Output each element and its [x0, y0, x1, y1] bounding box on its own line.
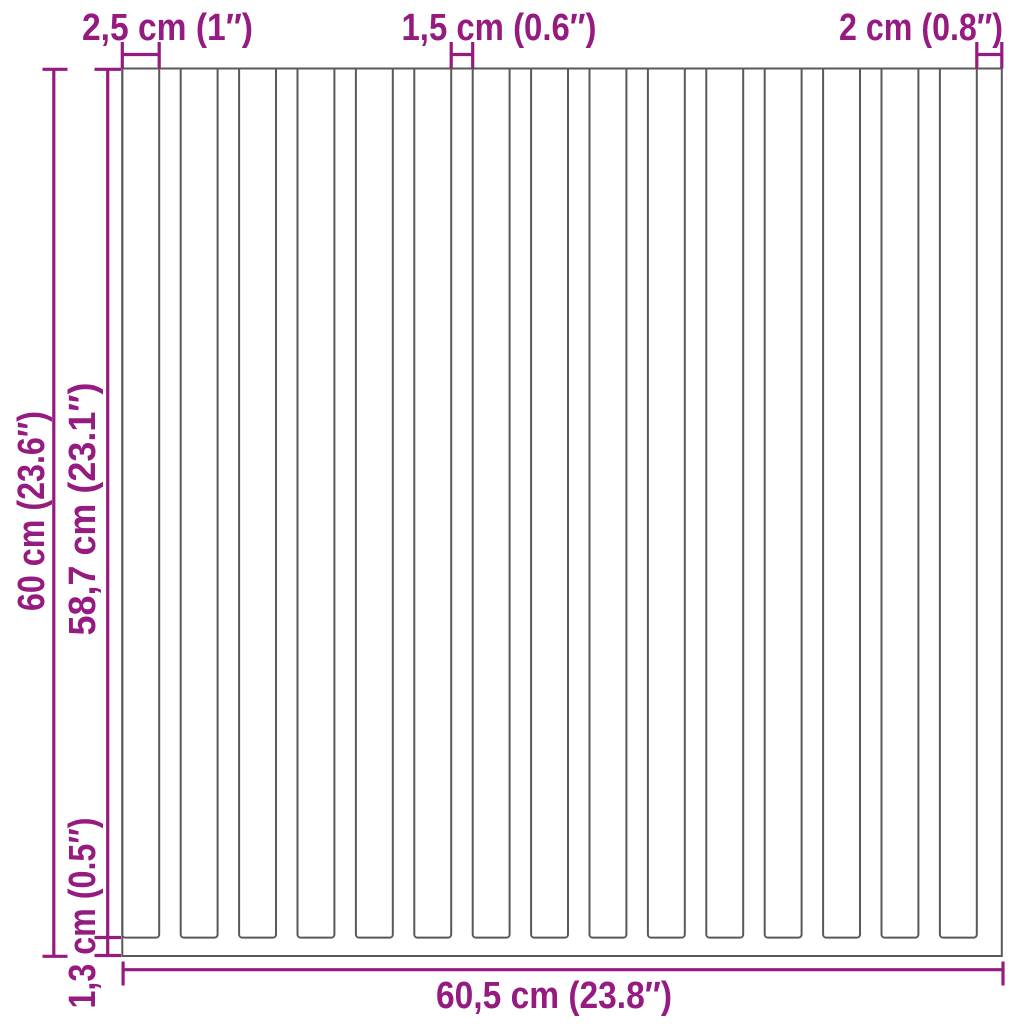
- svg-text:1,5 cm (0.6″): 1,5 cm (0.6″): [402, 7, 597, 49]
- svg-text:1,3 cm (0.5″): 1,3 cm (0.5″): [62, 818, 104, 1009]
- svg-text:58,7 cm (23.1″): 58,7 cm (23.1″): [62, 383, 104, 636]
- svg-text:60 cm (23.6″): 60 cm (23.6″): [11, 411, 53, 611]
- svg-text:2,5 cm (1″): 2,5 cm (1″): [82, 7, 253, 49]
- svg-text:60,5 cm (23.8″): 60,5 cm (23.8″): [436, 975, 672, 1017]
- svg-text:2 cm (0.8″): 2 cm (0.8″): [839, 7, 1003, 49]
